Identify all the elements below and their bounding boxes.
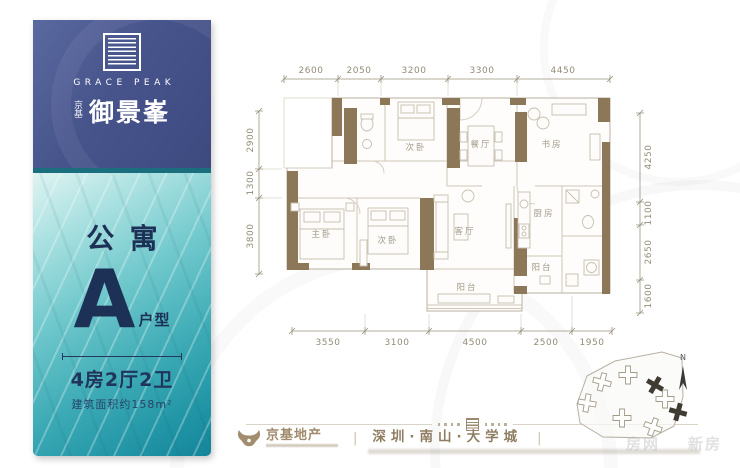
room-label-kitchen: 厨房 [533, 208, 554, 219]
watermark-left: 房网 [626, 433, 660, 454]
divider-dots [438, 423, 460, 426]
dim-right-2: 1100 [644, 201, 654, 226]
dim-bottom-4: 2500 [534, 338, 559, 348]
footer-separator: | [347, 431, 363, 446]
north-label: N [680, 353, 686, 362]
unit-type: A 户型 [33, 263, 211, 337]
dim-bottom-3: 4500 [463, 338, 488, 348]
footer-brand-row: 京基地产 | 深圳·南山·大学城 | [237, 429, 548, 447]
room-label-balcony-main: 阳台 [456, 282, 477, 293]
brand-name: 御景峯 [89, 93, 170, 129]
room-label-master: 主卧 [311, 229, 332, 240]
dim-top-2: 2050 [347, 66, 372, 76]
dim-left-1: 2900 [246, 128, 256, 153]
poster: GRACE PEAK 京基 御景峯 公寓 A 户型 4房2厅2卫 建筑面积约15… [0, 0, 740, 468]
location-text: 深圳·南山·大学城 [372, 431, 522, 445]
unit-type-label: 户型 [138, 309, 170, 330]
room-label-study: 书房 [541, 139, 562, 150]
unit-panel: 公寓 A 户型 4房2厅2卫 建筑面积约158m² [33, 168, 211, 456]
watermark-right: 新房 [688, 433, 722, 454]
unit-category: 公寓 [33, 217, 211, 257]
dim-bottom-1: 3550 [316, 338, 341, 348]
unit-area: 建筑面积约158m² [33, 396, 211, 412]
unit-type-letter: A [74, 263, 136, 337]
dim-top-5: 4450 [551, 66, 576, 76]
dim-top-3: 3200 [402, 66, 427, 76]
brand-english: GRACE PEAK [33, 78, 211, 88]
decorative-dimension-line [62, 353, 182, 360]
floor-plan: 2600 2050 3200 3300 4450 3550 3100 4500 … [222, 46, 722, 356]
dim-left-2: 1300 [246, 171, 256, 196]
dim-right-3: 2650 [644, 240, 654, 265]
unit-layout: 4房2厅2卫 [33, 365, 211, 392]
room-label-bedroom-bottom: 次卧 [377, 235, 398, 246]
brand-sidebar: GRACE PEAK 京基 御景峯 公寓 A 户型 4房2厅2卫 建筑面积约15… [33, 20, 211, 456]
dim-left-3: 3800 [246, 224, 256, 249]
brand-chinese-row: 京基 御景峯 [33, 93, 211, 129]
developer-name: 京基地产 [266, 429, 338, 442]
room-label-living: 客厅 [454, 226, 475, 237]
dim-bottom-2: 3100 [385, 338, 410, 348]
brand-seal-icon [103, 33, 141, 71]
dim-right-1: 4250 [644, 145, 654, 170]
dim-right-4: 1600 [644, 284, 654, 309]
brand-panel: GRACE PEAK 京基 御景峯 [33, 20, 211, 168]
divider-dots [485, 423, 507, 426]
brand-prefix: 京基 [74, 102, 84, 121]
room-label-balcony-side: 阳台 [531, 262, 552, 273]
room-label-dining: 餐厅 [470, 140, 491, 150]
dim-top-1: 2600 [299, 66, 324, 76]
footer-separator: | [531, 431, 547, 446]
developer-subtext [266, 444, 338, 447]
room-label-bedroom-top: 次卧 [405, 142, 426, 153]
developer-logo: 京基地产 [237, 429, 338, 447]
dim-top-4: 3300 [470, 66, 495, 76]
bull-icon [237, 429, 261, 447]
